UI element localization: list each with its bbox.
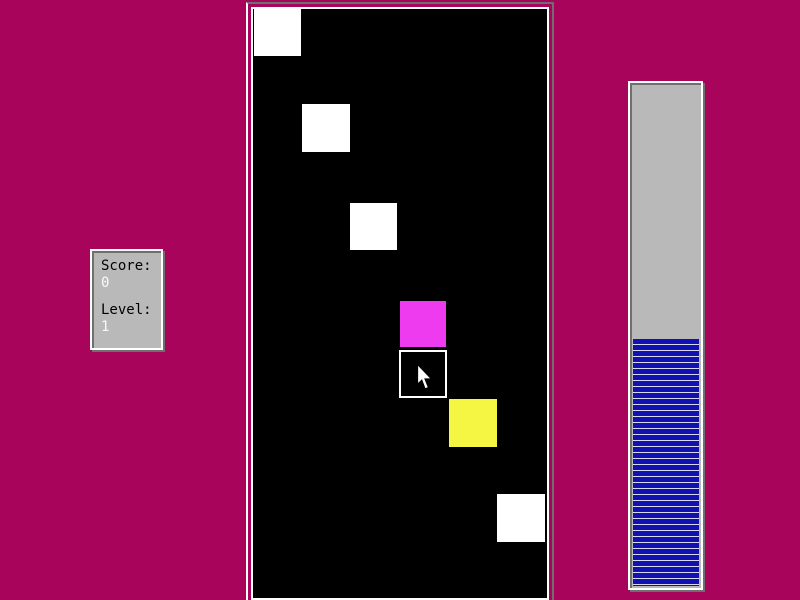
game-field-frame: [246, 2, 554, 600]
game-square[interactable]: [302, 104, 350, 152]
score-value: 0: [101, 275, 161, 292]
level-meter: [628, 81, 703, 590]
score-label: Score:: [101, 258, 161, 275]
score-panel: Score: 0 Level: 1: [90, 249, 163, 350]
game-field[interactable]: [253, 9, 547, 598]
game-square[interactable]: [350, 203, 397, 250]
game-square[interactable]: [497, 494, 545, 542]
level-label: Level:: [101, 302, 161, 319]
game-square[interactable]: [254, 9, 301, 56]
level-meter-fill: [633, 339, 699, 586]
game-square[interactable]: [449, 399, 497, 447]
game-square[interactable]: [400, 301, 446, 347]
level-value: 1: [101, 319, 161, 336]
selection-square[interactable]: [399, 350, 447, 398]
level-meter-track: [630, 83, 701, 588]
